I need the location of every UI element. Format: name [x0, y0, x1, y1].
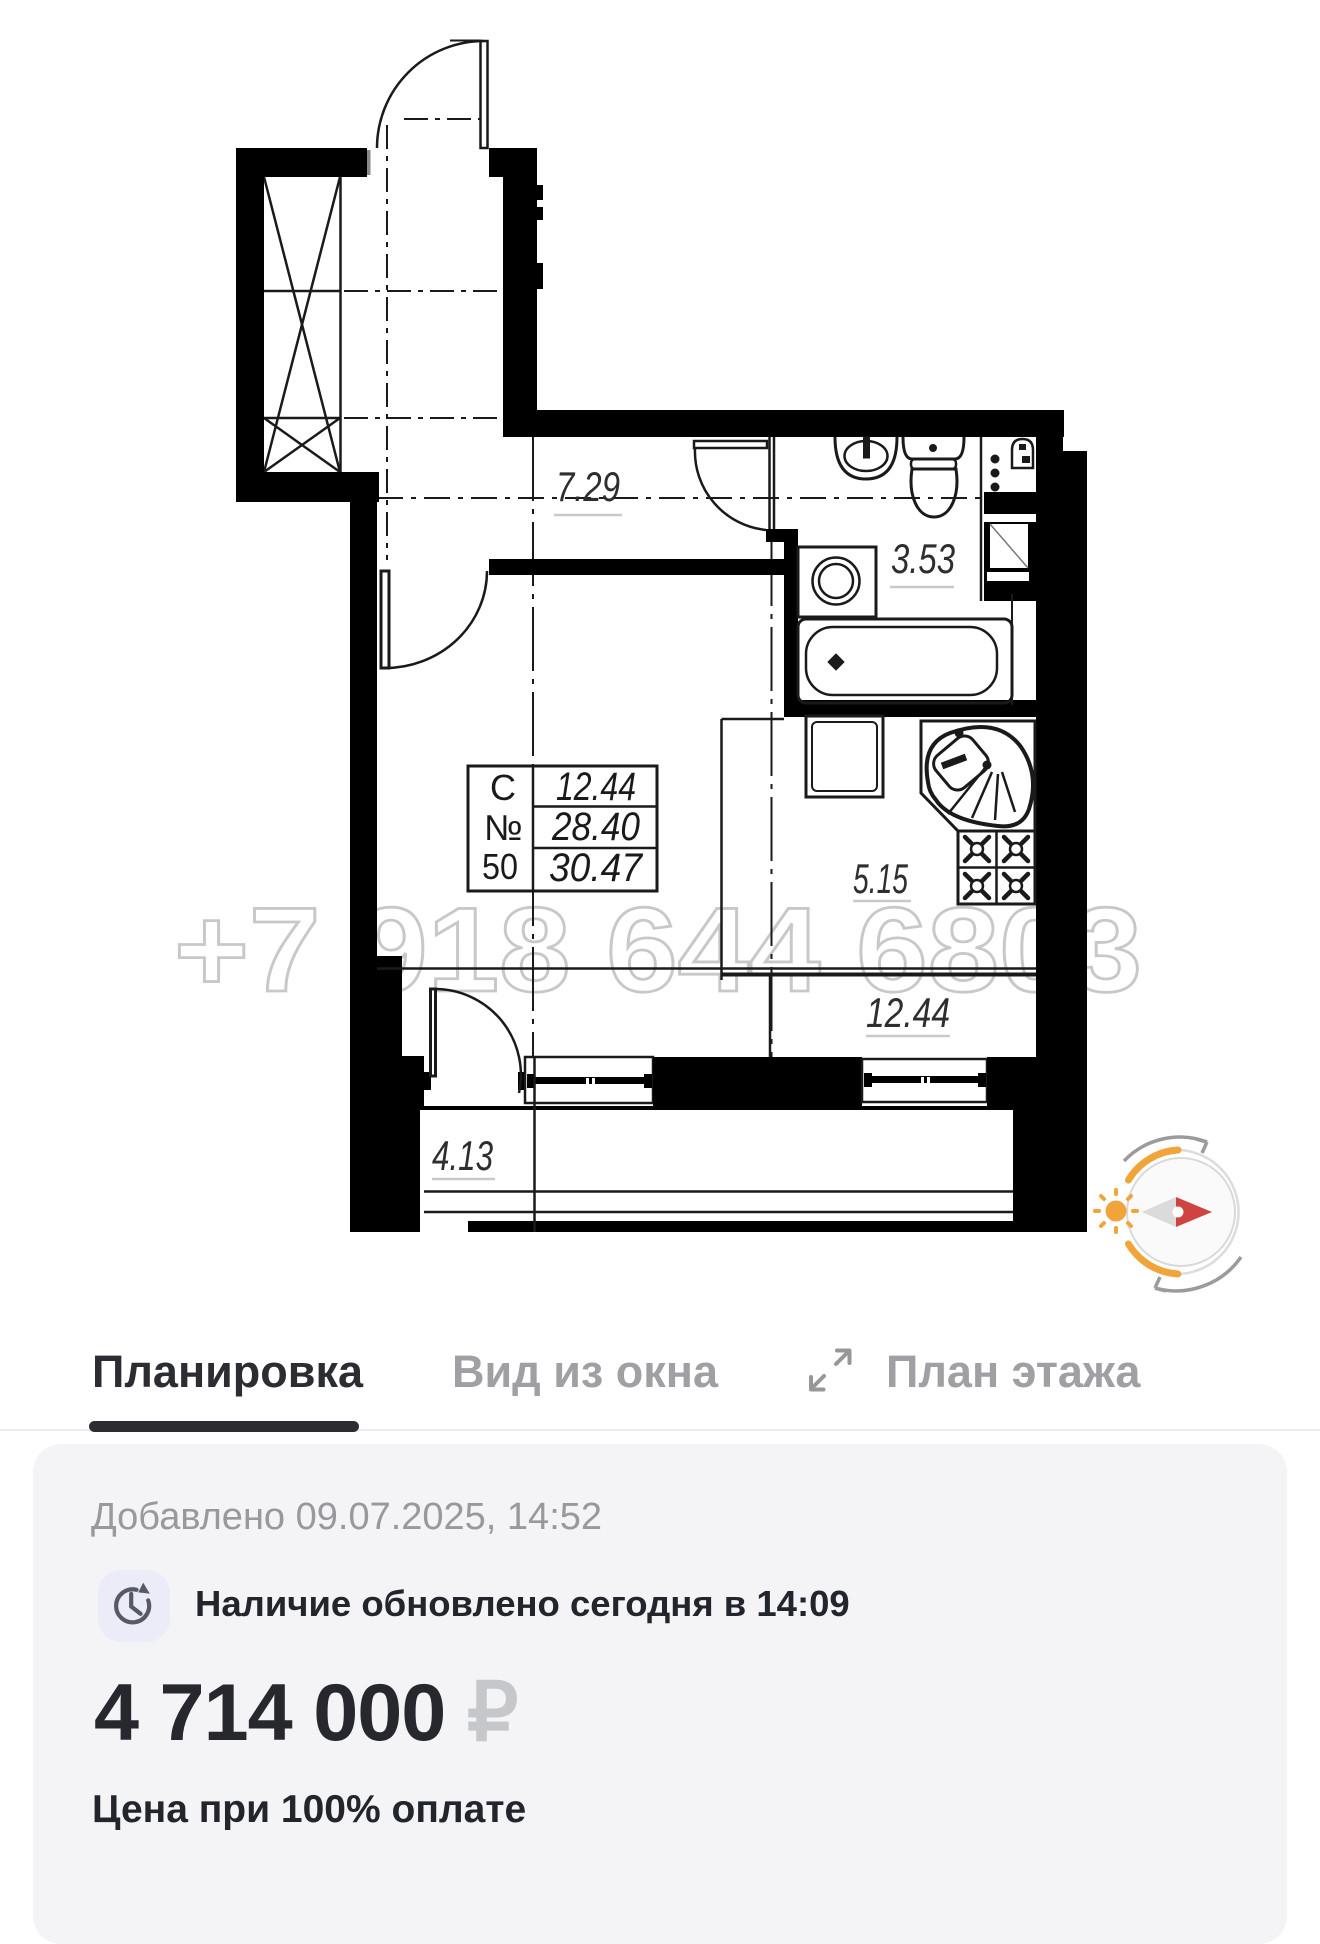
svg-text:30.47: 30.47: [549, 846, 644, 890]
svg-text:C: C: [490, 767, 516, 808]
svg-text:28.40: 28.40: [551, 805, 640, 849]
svg-text:50: 50: [482, 846, 518, 887]
svg-text:4.13: 4.13: [432, 1132, 493, 1179]
svg-text:12.44: 12.44: [556, 765, 636, 809]
svg-text:№: №: [484, 807, 523, 848]
svg-text:7.29: 7.29: [556, 463, 620, 510]
svg-text:5.15: 5.15: [853, 855, 908, 902]
svg-text:3.53: 3.53: [891, 535, 955, 582]
svg-text:12.44: 12.44: [866, 989, 950, 1036]
